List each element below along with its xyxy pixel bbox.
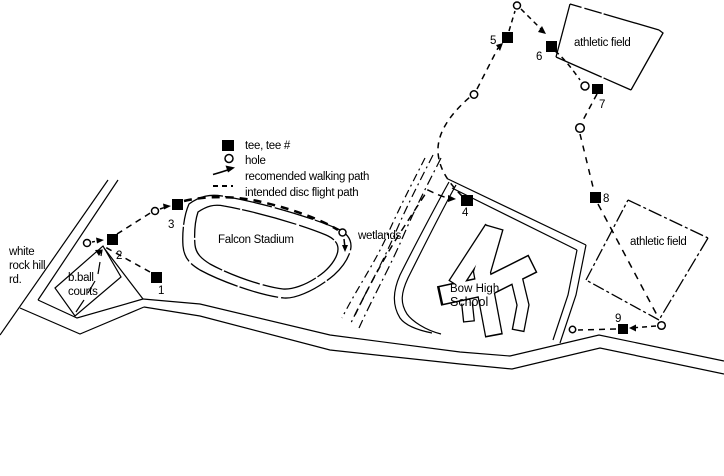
svg-text:Falcon Stadium: Falcon Stadium xyxy=(218,234,294,246)
svg-text:1: 1 xyxy=(158,285,164,297)
svg-text:white: white xyxy=(8,246,34,258)
svg-text:rock hill: rock hill xyxy=(9,260,45,272)
svg-text:School: School xyxy=(450,295,488,309)
svg-text:6: 6 xyxy=(536,51,542,63)
svg-text:7: 7 xyxy=(599,99,605,111)
svg-text:athletic field: athletic field xyxy=(574,37,631,49)
svg-text:Bow High: Bow High xyxy=(450,283,499,295)
svg-text:b.ball: b.ball xyxy=(68,272,94,284)
svg-text:hole: hole xyxy=(245,155,266,167)
svg-text:courts: courts xyxy=(68,286,98,298)
svg-text:recomended walking path: recomended walking path xyxy=(245,171,369,183)
svg-text:8: 8 xyxy=(603,193,609,205)
svg-text:4: 4 xyxy=(462,207,469,219)
svg-text:5: 5 xyxy=(490,35,496,47)
svg-text:rd.: rd. xyxy=(9,274,22,286)
svg-text:intended disc flight path: intended disc flight path xyxy=(245,187,358,199)
svg-text:tee, tee #: tee, tee # xyxy=(245,140,291,152)
svg-text:9: 9 xyxy=(615,313,621,325)
svg-text:wetlands: wetlands xyxy=(357,230,402,242)
svg-text:2: 2 xyxy=(116,250,122,262)
svg-text:athletic field: athletic field xyxy=(630,236,687,248)
svg-text:3: 3 xyxy=(168,219,174,231)
